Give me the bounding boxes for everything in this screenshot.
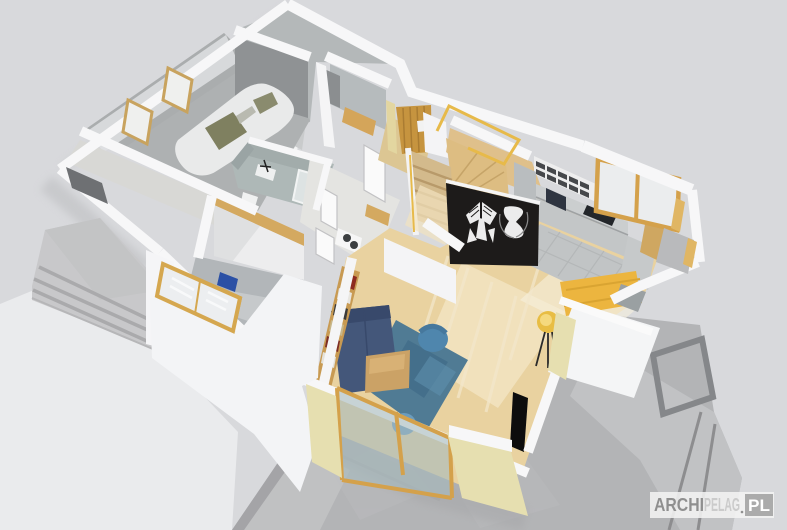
svg-text:ARCHI: ARCHI xyxy=(654,495,704,515)
svg-text:PELAG: PELAG xyxy=(704,495,740,515)
svg-text:PL: PL xyxy=(748,496,770,515)
